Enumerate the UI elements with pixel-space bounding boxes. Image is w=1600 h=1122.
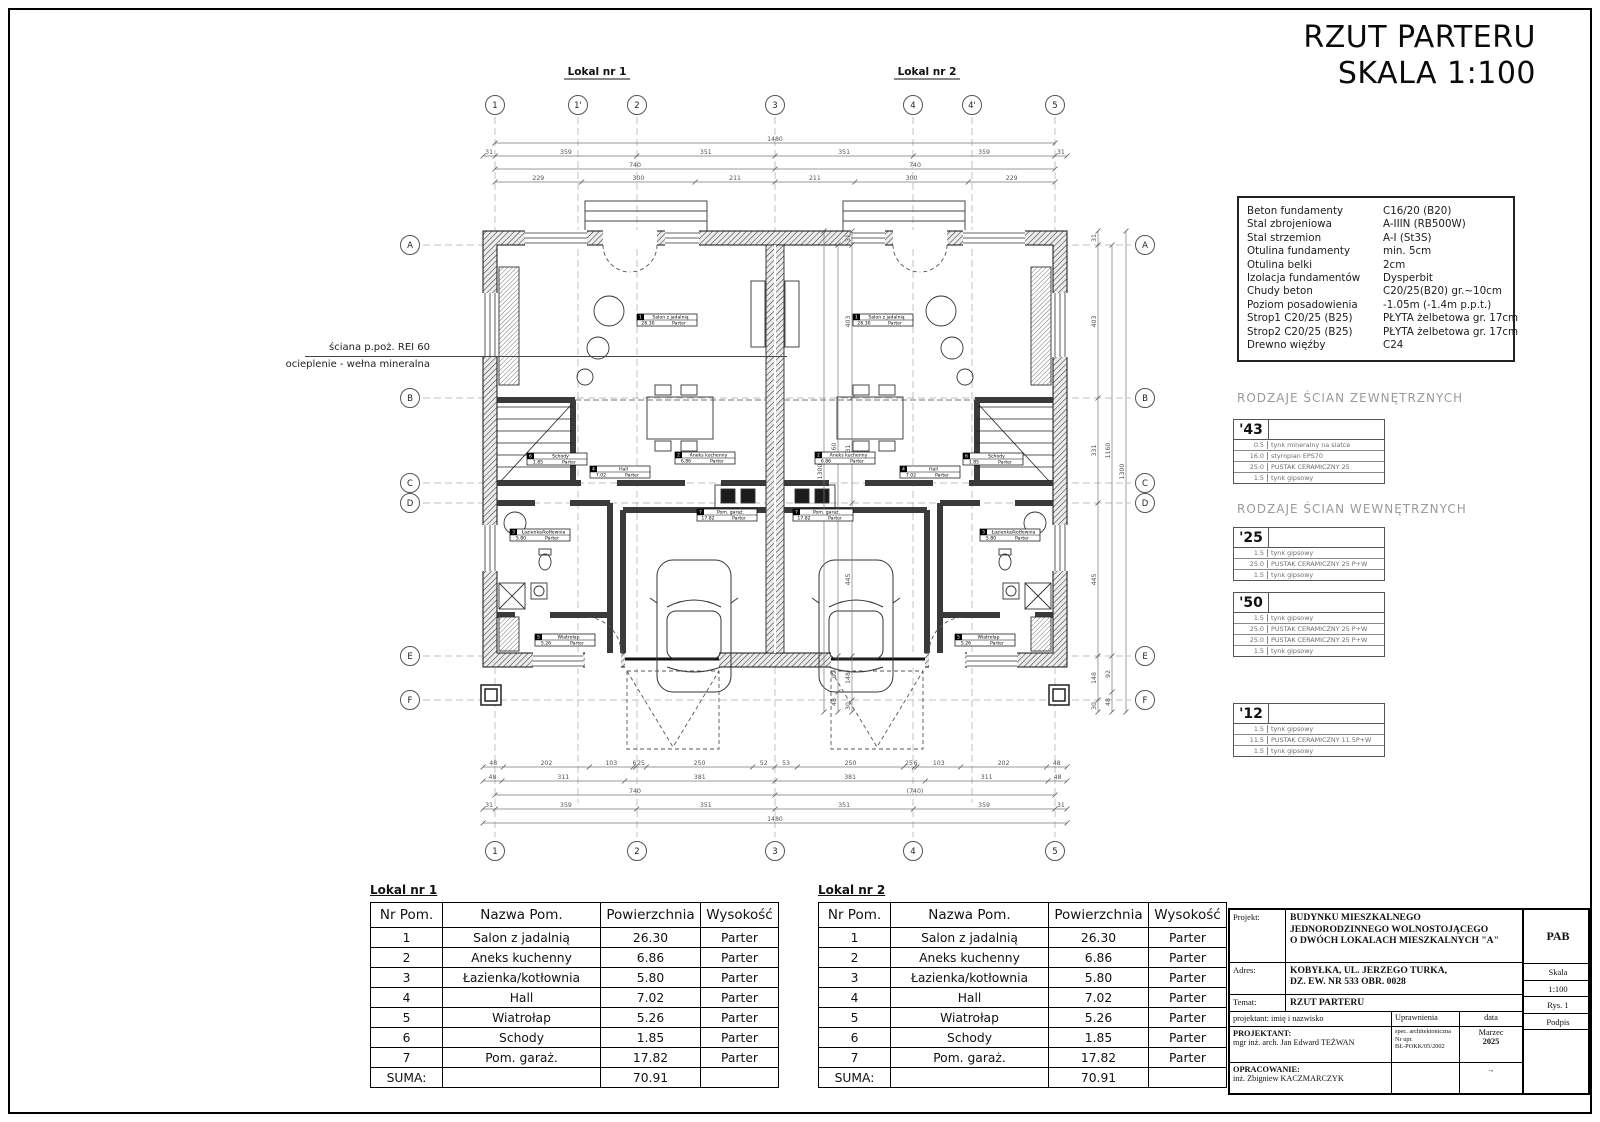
projekt-line2: JEDNORODZINNEGO WOLNOSTOJĄCEGO — [1290, 924, 1518, 936]
table-cell: 1 — [819, 928, 891, 948]
drawing-title-line2: SKALA 1:100 — [1303, 56, 1536, 92]
table-cell: Łazienka/kotłownia — [891, 968, 1049, 988]
plan-text: D — [407, 499, 414, 509]
plan-text: Parter — [710, 459, 724, 465]
plan-text: 30 — [845, 702, 852, 710]
table-row: 3Łazienka/kotłownia5.80Parter — [819, 968, 1227, 988]
plan-text: 331 — [1091, 445, 1098, 457]
column-header: Nazwa Pom. — [443, 903, 601, 928]
plan-text: 1480 — [767, 136, 783, 143]
table-cell: Parter — [1149, 1028, 1227, 1048]
table-cell: 26.30 — [1049, 928, 1149, 948]
table-cell: 5.26 — [601, 1008, 701, 1028]
wall-layer-row: 11.5PUSTAK CERAMICZNY 11.5P+W — [1234, 735, 1384, 746]
plan-text: 403 — [1091, 316, 1098, 328]
title-block-temat-label: Temat: — [1230, 995, 1286, 1011]
plan-text: 2 — [634, 101, 639, 111]
projektant-label: PROJEKTANT: — [1233, 1029, 1388, 1038]
table-cell: 70.91 — [1049, 1068, 1149, 1088]
table-cell — [891, 1068, 1049, 1088]
title-block: Projekt: BUDYNKU MIESZKALNEGO JEDNORODZI… — [1228, 908, 1590, 1095]
plan-text: Parter — [998, 460, 1012, 466]
room-table-header: Nr Pom.Nazwa Pom.PowierzchniaWysokość — [819, 903, 1227, 928]
table-cell: Pom. garaż. — [891, 1048, 1049, 1068]
table-cell: 70.91 — [601, 1068, 701, 1088]
table-cell: Parter — [1149, 1008, 1227, 1028]
table-cell: Hall — [443, 988, 601, 1008]
wall-layer-row: 1.5tynk gipsowy — [1234, 613, 1384, 624]
table-cell: Parter — [701, 1008, 779, 1028]
plan-text: 351 — [700, 802, 712, 809]
plan-text: 31 — [1057, 802, 1065, 809]
plan-text: 6 — [632, 760, 636, 767]
plan-text: Parter — [1015, 536, 1029, 542]
table-cell: 4 — [371, 988, 443, 1008]
plan-text: 92 — [1105, 670, 1112, 678]
spec-row: Stal strzemionA-I (St3S) — [1247, 232, 1505, 245]
table-cell: Wiatrołap — [891, 1008, 1049, 1028]
table-cell: Salon z jadalnią — [891, 928, 1049, 948]
plan-text: 740 — [629, 162, 641, 169]
table-cell: 4 — [819, 988, 891, 1008]
plan-text: E — [1142, 652, 1147, 662]
wall-type-code: '43 — [1234, 420, 1269, 439]
plan-text: 1160 — [1105, 443, 1112, 459]
plan-text: A — [1142, 241, 1148, 251]
table-row: 4Hall7.02Parter — [371, 988, 779, 1008]
table-cell: Parter — [701, 928, 779, 948]
plan-text: 359 — [978, 149, 990, 156]
plan-text: 148 — [1091, 672, 1098, 684]
plan-text: 148 — [845, 672, 852, 684]
plan-text: 4' — [968, 101, 976, 111]
plan-text: 1300 — [1119, 464, 1126, 480]
plan-text: Hall — [619, 467, 628, 473]
table-cell: Schody — [443, 1028, 601, 1048]
plan-text: 25 — [905, 760, 913, 767]
plan-text: 202 — [998, 760, 1010, 767]
plan-text: Parter — [888, 321, 902, 327]
plan-text: C — [1142, 479, 1148, 489]
plan-text: 48 — [489, 774, 497, 781]
wall-layer-row: 16.0styropian EPS70 — [1234, 451, 1384, 462]
table-cell: 5 — [371, 1008, 443, 1028]
plan-text: Łazienka/kotłownia — [991, 530, 1036, 536]
plan-text: 5.80 — [516, 536, 526, 542]
plan-text: Łazienka/kotłownia — [521, 530, 566, 536]
table-row: 2Aneks kuchenny6.86Parter — [819, 948, 1227, 968]
plan-text: Wiatrołap — [978, 635, 1000, 641]
plan-text: 1 — [639, 315, 642, 321]
projekt-line3: O DWÓCH LOKALACH MIESZKALNYCH "A" — [1290, 935, 1518, 947]
plan-text: 6 — [965, 454, 968, 460]
plan-text: 4 — [592, 467, 595, 473]
drawing-title: RZUT PARTERU SKALA 1:100 — [1303, 20, 1536, 92]
plan-text: 381 — [694, 774, 706, 781]
plan-text: Parter — [850, 459, 864, 465]
spec-row: Chudy betonC20/25(B20) gr.~10cm — [1247, 285, 1505, 298]
table-cell: 5.26 — [1049, 1008, 1149, 1028]
signature-area — [1524, 1030, 1592, 1093]
plan-text: 31 — [485, 149, 493, 156]
plan-text: 3 — [772, 847, 777, 857]
plan-text: 351 — [838, 149, 850, 156]
table-cell — [1149, 1068, 1227, 1088]
plan-text: 7 — [795, 510, 798, 516]
plan-text: 311 — [557, 774, 569, 781]
table-row: 1Salon z jadalnią26.30Parter — [371, 928, 779, 948]
office-code: PAB — [1524, 910, 1592, 964]
wall-layer-row: 0.5tynk mineralny na siatce — [1234, 440, 1384, 451]
spec-row: Strop1 C20/25 (B25)PŁYTA żelbetowa gr. 1… — [1247, 312, 1505, 325]
plan-text: 211 — [729, 175, 741, 182]
skala-value: 1:100 — [1524, 981, 1592, 997]
plan-text: 48 — [489, 760, 497, 767]
plan-text: Schody — [988, 454, 1005, 460]
plan-text: 53 — [782, 760, 790, 767]
plan-text: 17.82 — [701, 516, 714, 522]
plan-text: 381 — [844, 774, 856, 781]
plan-text: 740 — [629, 788, 641, 795]
plan-text: Aneks kuchenny — [690, 453, 728, 459]
table-cell: 7 — [371, 1048, 443, 1068]
table-row: 4Hall7.02Parter — [819, 988, 1227, 1008]
table-cell: 2 — [371, 948, 443, 968]
plan-text: Parter — [935, 473, 949, 479]
plan-text: Parter — [570, 641, 584, 647]
spec-row: Izolacja fundamentówDysperbit — [1247, 272, 1505, 285]
plan-text: 359 — [560, 149, 572, 156]
plan-text: Wiatrołap — [558, 635, 580, 641]
plan-text: 4 — [902, 467, 905, 473]
wall-type-code: '12 — [1234, 704, 1269, 723]
plan-text: 6.86 — [821, 459, 831, 465]
plan-text: 1' — [574, 101, 582, 111]
plan-text: 211 — [809, 175, 821, 182]
plan-text: 1 — [492, 847, 497, 857]
projektant-upr-cell: spec. architektoniczna Nr upr. BŁ-POKK/0… — [1392, 1027, 1460, 1061]
plan-text: Lokal nr 1 — [568, 66, 627, 78]
table-cell: 7.02 — [1049, 988, 1149, 1008]
header-projektant: projektant: imię i nazwisko — [1230, 1012, 1392, 1027]
fire-wall-note-line1: ściana p.poż. REI 60 — [268, 342, 430, 353]
table-cell: 5 — [819, 1008, 891, 1028]
date-line1: Marzec — [1463, 1028, 1519, 1037]
room-table-body: 1Salon z jadalnią26.30Parter2Aneks kuche… — [819, 928, 1227, 1088]
plan-text: A — [407, 241, 413, 251]
plan-text: 48 — [1053, 760, 1061, 767]
plan-text: 31 — [485, 802, 493, 809]
plan-text: 202 — [540, 760, 552, 767]
table-cell: Parter — [701, 948, 779, 968]
plan-text: Lokal nr 2 — [898, 66, 957, 78]
plan-text: 26.30 — [857, 321, 870, 327]
plan-text: 351 — [700, 149, 712, 156]
adres-line1: KOBYŁKA, UL. JERZEGO TURKA, — [1290, 965, 1518, 977]
plan-text: 5.26 — [961, 641, 971, 647]
plan-text: 48 — [1105, 698, 1112, 706]
spec-row: Stal zbrojeniowaA-IIIN (RB500W) — [1247, 218, 1505, 231]
plan-text: 6 — [914, 760, 918, 767]
table-cell: 17.82 — [601, 1048, 701, 1068]
plan-text: Salon z jadalnią — [868, 315, 904, 321]
plan-text: 31 — [1091, 234, 1098, 242]
table-row: 3Łazienka/kotłownia5.80Parter — [371, 968, 779, 988]
plan-text: 740 — [909, 162, 921, 169]
plan-text: 1300 — [817, 464, 824, 480]
plan-text: 52 — [760, 760, 768, 767]
car-right — [812, 560, 900, 692]
plan-text: 311 — [981, 774, 993, 781]
table-cell: Schody — [891, 1028, 1049, 1048]
table-cell: Parter — [701, 1028, 779, 1048]
table-cell: 6.86 — [1049, 948, 1149, 968]
wall-layer-row: 1.5tynk gipsowy — [1234, 724, 1384, 735]
plan-text: 359 — [978, 802, 990, 809]
drawing-title-line1: RZUT PARTERU — [1303, 20, 1536, 56]
spec-row: Poziom posadowienia-1.05m (-1.4m p.p.t.) — [1247, 299, 1505, 312]
column-header: Powierzchnia — [601, 903, 701, 928]
plan-text: Parter — [562, 460, 576, 466]
opracowanie-name: inż. Zbigniew KACZMARCZYK — [1233, 1074, 1388, 1083]
wall-type-50: '501.5tynk gipsowy25.0PUSTAK CERAMICZNY … — [1233, 592, 1385, 657]
plan-text: 250 — [845, 760, 857, 767]
table-row: 7Pom. garaż.17.82Parter — [371, 1048, 779, 1068]
table-cell: Aneks kuchenny — [443, 948, 601, 968]
plan-text: 5 — [957, 635, 960, 641]
external-walls-heading: RODZAJE ŚCIAN ZEWNĘTRZNYCH — [1237, 391, 1463, 405]
table-cell: 1 — [371, 928, 443, 948]
plan-text: Parter — [990, 641, 1004, 647]
plan-text: 351 — [838, 802, 850, 809]
skala-label: Skala — [1524, 964, 1592, 981]
table-cell: 1.85 — [601, 1028, 701, 1048]
spec-row: Beton fundamentyC16/20 (B20) — [1247, 205, 1505, 218]
plan-text: 48 — [1054, 774, 1062, 781]
plan-text: Pom. garaż. — [717, 510, 744, 516]
plan-text: Parter — [672, 321, 686, 327]
table-row: 1Salon z jadalnią26.30Parter — [819, 928, 1227, 948]
table-cell — [701, 1068, 779, 1088]
header-data: data — [1460, 1012, 1522, 1027]
wall-type-12: '121.5tynk gipsowy11.5PUSTAK CERAMICZNY … — [1233, 703, 1385, 757]
materials-spec-box: Beton fundamentyC16/20 (B20)Stal zbrojen… — [1237, 196, 1515, 362]
plan-text: 2 — [634, 847, 639, 857]
table-cell: 3 — [819, 968, 891, 988]
plan-text: F — [408, 696, 413, 706]
table-cell: 26.30 — [601, 928, 701, 948]
plan-text: 7.02 — [906, 473, 916, 479]
table-cell: 17.82 — [1049, 1048, 1149, 1068]
table-row: 5Wiatrołap5.26Parter — [819, 1008, 1227, 1028]
table-row: 6Schody1.85Parter — [819, 1028, 1227, 1048]
table-row: 7Pom. garaż.17.82Parter — [819, 1048, 1227, 1068]
table-cell: Parter — [1149, 1048, 1227, 1068]
plan-text: 25 — [637, 760, 645, 767]
plan-text: 2 — [677, 453, 680, 459]
plan-text: F — [1143, 696, 1148, 706]
wall-type-code: '50 — [1234, 593, 1269, 612]
table-cell: 6 — [371, 1028, 443, 1048]
rys-number: Rys. 1 — [1524, 997, 1592, 1014]
room-table-lokal1-caption: Lokal nr 1 — [370, 883, 762, 897]
plan-text: Parter — [545, 536, 559, 542]
plan-text: 3 — [982, 530, 985, 536]
plan-text: 30 — [1091, 702, 1098, 710]
wall-layer-row: 25.0PUSTAK CERAMICZNY 25 — [1234, 462, 1384, 473]
column-header: Nr Pom. — [371, 903, 443, 928]
column-header: Powierzchnia — [1049, 903, 1149, 928]
floor-plan: 1480313593513513593174074022930021121130… — [385, 55, 1165, 885]
fire-wall-note-leader — [305, 356, 787, 357]
table-cell: Łazienka/kotłownia — [443, 968, 601, 988]
spec-row: Otulina fundamentymin. 5cm — [1247, 245, 1505, 258]
plan-text: 445 — [845, 574, 852, 586]
plan-text: 3 — [512, 530, 515, 536]
plan-text: 6 — [529, 454, 532, 460]
wall-type-25: '251.5tynk gipsowy25.0PUSTAK CERAMICZNY … — [1233, 527, 1385, 581]
podpis-label: Podpis — [1524, 1014, 1592, 1030]
plan-text: B — [407, 394, 413, 404]
table-cell: Parter — [701, 1048, 779, 1068]
table-row: 5Wiatrołap5.26Parter — [371, 1008, 779, 1028]
plan-text: Parter — [732, 516, 746, 522]
projektant-date-cell: Marzec 2025 — [1460, 1027, 1522, 1061]
plan-text: 7 — [699, 510, 702, 516]
plan-text: 5 — [537, 635, 540, 641]
wall-layer-row: 1.5tynk gipsowy — [1234, 746, 1384, 756]
plan-text: Parter — [828, 516, 842, 522]
wall-type-43: '430.5tynk mineralny na siatce16.0styrop… — [1233, 419, 1385, 484]
table-cell: 7.02 — [601, 988, 701, 1008]
plan-text: D — [1142, 499, 1149, 509]
plan-text: 4 — [910, 847, 915, 857]
plan-text: 5 — [1052, 847, 1057, 857]
opracowanie-label: OPRACOWANIE: — [1233, 1065, 1388, 1074]
plan-text: C — [407, 479, 413, 489]
plan-text: 6.86 — [681, 459, 691, 465]
plan-text: Salon z jadalnią — [652, 315, 688, 321]
column-header: Wysokość — [701, 903, 779, 928]
table-row: 6Schody1.85Parter — [371, 1028, 779, 1048]
plan-text: E — [407, 652, 412, 662]
opracowanie-date-cell: ., — [1460, 1063, 1522, 1093]
room-table-lokal1: Lokal nr 1 Nr Pom.Nazwa Pom.Powierzchnia… — [370, 883, 762, 1088]
table-cell: 5.80 — [1049, 968, 1149, 988]
plan-text: 7.02 — [596, 473, 606, 479]
table-cell: 6 — [819, 1028, 891, 1048]
plan-text: 17.82 — [797, 516, 810, 522]
internal-walls-heading: RODZAJE ŚCIAN WEWNĘTRZNYCH — [1237, 502, 1467, 516]
upr-line3: BŁ-POKK/05/2002 — [1395, 1043, 1456, 1051]
suma-row: SUMA:70.91 — [371, 1068, 779, 1088]
spec-row: Otulina belki2cm — [1247, 259, 1505, 272]
wall-layer-row: 25.0PUSTAK CERAMICZNY 25 P+W — [1234, 559, 1384, 570]
projektant-name: mgr inż. arch. Jan Edward TEŻWAN — [1233, 1038, 1388, 1047]
table-cell: Pom. garaż. — [443, 1048, 601, 1068]
spec-rows: Beton fundamentyC16/20 (B20)Stal zbrojen… — [1247, 205, 1505, 352]
table-cell: Parter — [1149, 988, 1227, 1008]
table-cell: Parter — [701, 968, 779, 988]
adres-line2: DZ. EW. NR 533 OBR. 0028 — [1290, 976, 1518, 988]
plan-text: Schody — [552, 454, 569, 460]
plan-text: Pom. garaż. — [813, 510, 840, 516]
opracowanie-upr-cell — [1392, 1063, 1460, 1093]
plan-text: 229 — [1006, 175, 1018, 182]
table-cell: 5.80 — [601, 968, 701, 988]
projekt-line1: BUDYNKU MIESZKALNEGO — [1290, 912, 1518, 924]
plan-text: 4 — [910, 101, 915, 111]
table-cell: 7 — [819, 1048, 891, 1068]
plan-text: 31 — [845, 234, 852, 242]
header-uprawnienia: Uprawnienia — [1392, 1012, 1460, 1027]
projektant-cell: PROJEKTANT: mgr inż. arch. Jan Edward TE… — [1230, 1027, 1392, 1061]
plan-text: 26.30 — [641, 321, 654, 327]
plan-text: 403 — [845, 316, 852, 328]
table-cell: Parter — [1149, 928, 1227, 948]
wall-layer-row: 1.5tynk gipsowy — [1234, 548, 1384, 559]
opracowanie-cell: OPRACOWANIE: inż. Zbigniew KACZMARCZYK — [1230, 1063, 1392, 1093]
wall-layer-row: 1.5tynk gipsowy — [1234, 473, 1384, 483]
wall-layer-row: 25.0PUSTAK CERAMICZNY 25 P+W — [1234, 624, 1384, 635]
car-left — [650, 560, 738, 692]
plan-text: 103 — [933, 760, 945, 767]
table-cell: 1.85 — [1049, 1028, 1149, 1048]
table-cell: SUMA: — [819, 1068, 891, 1088]
column-header: Wysokość — [1149, 903, 1227, 928]
room-table-header: Nr Pom.Nazwa Pom.PowierzchniaWysokość — [371, 903, 779, 928]
column-header: Nazwa Pom. — [891, 903, 1049, 928]
spec-row: Drewno więźbyC24 — [1247, 339, 1505, 352]
table-cell: Wiatrołap — [443, 1008, 601, 1028]
plan-text: Aneks kuchenny — [830, 453, 868, 459]
plan-text: 5 — [1052, 101, 1057, 111]
plan-text: 1 — [492, 101, 497, 111]
fire-wall-note-line2: ocieplenie - wełna mineralna — [256, 359, 430, 370]
plan-text: B — [1142, 394, 1148, 404]
table-cell: Salon z jadalnią — [443, 928, 601, 948]
table-cell: SUMA: — [371, 1068, 443, 1088]
table-cell: Hall — [891, 988, 1049, 1008]
room-table-lokal2-caption: Lokal nr 2 — [818, 883, 1210, 897]
plan-text: 300 — [906, 175, 918, 182]
upr-line2: Nr upr. — [1395, 1036, 1456, 1044]
plan-text: 31 — [1057, 149, 1065, 156]
plan-text: 5.80 — [986, 536, 996, 542]
drawing-sheet: RZUT PARTERU SKALA 1:100 — [0, 0, 1600, 1122]
plan-text: 5.26 — [541, 641, 551, 647]
table-cell: Parter — [1149, 968, 1227, 988]
date-line2: 2025 — [1463, 1037, 1519, 1046]
column-header: Nr Pom. — [819, 903, 891, 928]
table-cell: 3 — [371, 968, 443, 988]
room-table-body: 1Salon z jadalnią26.30Parter2Aneks kuche… — [371, 928, 779, 1088]
plan-text: 1.85 — [969, 460, 979, 466]
upr-line1: spec. architektoniczna — [1395, 1028, 1456, 1036]
plan-text: 103 — [605, 760, 617, 767]
plan-text: Hall — [929, 467, 938, 473]
plan-text: 92 — [831, 670, 838, 678]
table-cell: Parter — [1149, 948, 1227, 968]
wall-type-code: '25 — [1234, 528, 1269, 547]
wall-layer-row: 1.5tynk gipsowy — [1234, 570, 1384, 580]
room-table-lokal2: Lokal nr 2 Nr Pom.Nazwa Pom.Powierzchnia… — [818, 883, 1210, 1088]
table-cell: 2 — [819, 948, 891, 968]
title-block-temat-value: RZUT PARTERU — [1286, 995, 1522, 1011]
wall-layer-row: 25.0PUSTAK CERAMICZNY 25 P+W — [1234, 635, 1384, 646]
table-cell — [443, 1068, 601, 1088]
suma-row: SUMA:70.91 — [819, 1068, 1227, 1088]
